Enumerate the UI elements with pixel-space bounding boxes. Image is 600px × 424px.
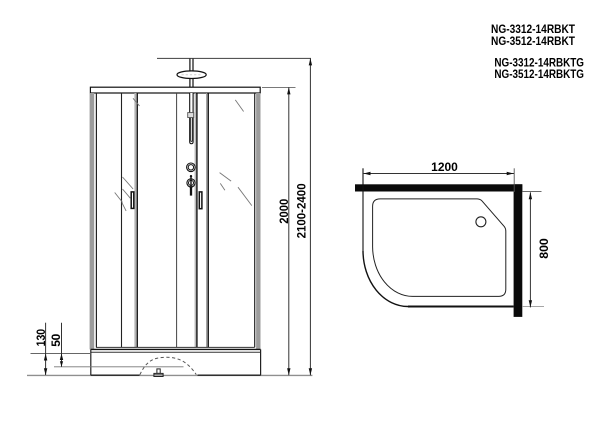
svg-text:50: 50 (49, 333, 63, 346)
svg-text:800: 800 (537, 238, 551, 259)
svg-text:2000: 2000 (277, 199, 291, 224)
svg-text:NG-3512-14RBKT: NG-3512-14RBKT (491, 34, 576, 48)
svg-text:1200: 1200 (431, 160, 458, 174)
svg-text:130: 130 (34, 329, 48, 347)
svg-text:2100-2400: 2100-2400 (295, 183, 309, 238)
svg-text:NG-3512-14RBKTG: NG-3512-14RBKTG (494, 67, 584, 81)
